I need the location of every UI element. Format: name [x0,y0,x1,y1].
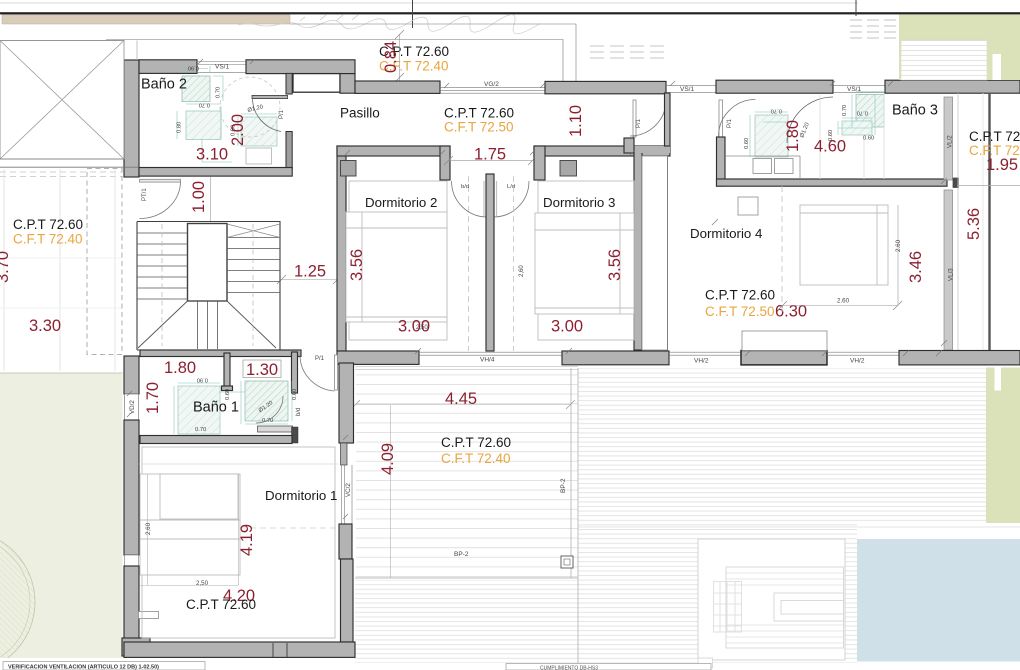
svg-text:C.P.T 72.60: C.P.T 72.60 [13,217,83,232]
svg-text:0.80: 0.80 [177,122,183,133]
svg-text:C.P.T 72.60: C.P.T 72.60 [441,435,511,450]
svg-text:1.80: 1.80 [164,359,196,377]
svg-text:P/1: P/1 [727,118,733,128]
svg-text:0.90: 0.90 [197,377,208,383]
svg-text:0.70: 0.70 [857,110,868,116]
svg-text:VS/1: VS/1 [215,64,229,71]
svg-text:C.F.T 72.50: C.F.T 72.50 [705,304,775,319]
svg-text:1.80: 1.80 [784,120,802,152]
svg-text:1.00: 1.00 [190,181,208,213]
svg-text:VH/2: VH/2 [694,358,709,365]
svg-text:P/1: P/1 [279,109,285,119]
svg-text:0.70: 0.70 [262,418,273,424]
svg-text:2,50: 2,50 [196,580,209,587]
svg-text:VG/2: VG/2 [484,81,499,88]
svg-text:3.46: 3.46 [907,251,925,283]
svg-text:Dormitorio 2: Dormitorio 2 [365,195,437,210]
svg-text:4.60: 4.60 [814,138,846,156]
svg-text:1.30: 1.30 [246,361,278,379]
svg-text:2.60: 2.60 [895,239,902,252]
svg-text:3.56: 3.56 [606,249,624,281]
svg-text:3.00: 3.00 [551,318,583,336]
svg-text:BP-2: BP-2 [560,478,567,493]
svg-text:1.10: 1.10 [567,105,585,137]
svg-text:3.10: 3.10 [196,146,228,164]
svg-text:0.70: 0.70 [199,102,210,108]
svg-text:3.30: 3.30 [29,317,61,335]
svg-text:CUMPLIMIENTO DB-HS3: CUMPLIMIENTO DB-HS3 [540,666,598,670]
svg-text:BP-2: BP-2 [454,551,469,558]
svg-text:0.70: 0.70 [195,427,206,433]
svg-text:C.F.T 72.50: C.F.T 72.50 [444,120,514,135]
svg-text:0.84: 0.84 [382,41,400,73]
svg-text:VS/1: VS/1 [847,86,861,93]
svg-text:2,60: 2,60 [519,265,525,277]
svg-text:1.25: 1.25 [294,263,326,281]
svg-text:C.P.T 72.60: C.P.T 72.60 [705,288,775,303]
svg-text:Baño 2: Baño 2 [141,77,187,93]
svg-text:0.90: 0.90 [188,65,199,71]
svg-text:0.60: 0.60 [863,136,874,142]
svg-text:Pasillo: Pasillo [340,106,380,121]
svg-text:VERIFICACION VENTILACION (ARTI: VERIFICACION VENTILACION (ARTICULO 12 DB… [8,665,159,670]
svg-text:4.09: 4.09 [379,443,397,475]
svg-text:0.70: 0.70 [771,108,782,114]
svg-text:VH/4: VH/4 [480,357,495,364]
svg-text:C.P.T 72.6: C.P.T 72.6 [969,129,1020,144]
svg-text:Baño 1: Baño 1 [193,400,239,416]
svg-text:VD/2: VD/2 [129,400,136,414]
svg-text:PT/1: PT/1 [142,188,148,201]
svg-text:1.95: 1.95 [986,156,1018,174]
svg-text:2,50: 2,50 [416,325,428,331]
svg-text:2.60: 2.60 [837,298,850,305]
svg-text:4.45: 4.45 [445,390,477,408]
svg-text:VH/2: VH/2 [850,358,865,365]
svg-text:C.F.T 72.40: C.F.T 72.40 [441,451,511,466]
svg-text:4.19: 4.19 [238,524,256,556]
svg-text:C.P.T 72.60: C.P.T 72.60 [444,106,514,121]
svg-text:C.F.T 72.40: C.F.T 72.40 [13,232,83,247]
svg-text:Dormitorio 3: Dormitorio 3 [543,195,615,210]
svg-text:Dormitorio 1: Dormitorio 1 [265,488,337,503]
svg-text:P/1: P/1 [315,356,325,362]
svg-text:3.70: 3.70 [0,251,12,283]
svg-text:3.56: 3.56 [348,249,366,281]
svg-text:0.60: 0.60 [292,389,298,400]
svg-text:2,60: 2,60 [145,522,152,535]
svg-text:VC/2: VC/2 [345,483,352,497]
svg-text:Baño 3: Baño 3 [892,103,938,119]
svg-text:0.60: 0.60 [744,138,750,149]
svg-text:5.36: 5.36 [965,208,983,240]
svg-text:Dormitorio 4: Dormitorio 4 [690,226,762,241]
svg-text:0.70: 0.70 [842,105,848,116]
svg-text:0.60: 0.60 [225,389,231,400]
svg-text:P/1: P/1 [636,118,642,128]
svg-text:VL/2: VL/2 [947,135,954,148]
svg-text:b/d: b/d [296,408,302,416]
svg-text:C.P.T 72.60: C.P.T 72.60 [186,597,256,612]
svg-text:2.00: 2.00 [229,114,247,146]
svg-text:VL/3: VL/3 [948,268,955,281]
svg-text:VS/1: VS/1 [680,86,694,93]
svg-text:0.70: 0.70 [216,87,222,98]
svg-text:b/d: b/d [461,184,469,190]
svg-text:1.70: 1.70 [144,382,162,414]
